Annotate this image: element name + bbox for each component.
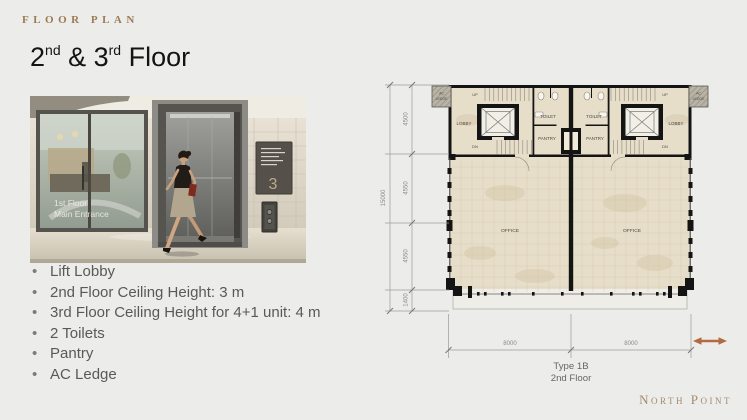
elevator: [152, 100, 248, 248]
label-up-right: UP: [662, 92, 668, 97]
label-lobby-left: LOBBY: [456, 121, 471, 126]
label-ac-left-2: LEDGE: [436, 97, 449, 101]
double-arrow-icon: [693, 337, 727, 345]
label-lobby-right: LOBBY: [668, 121, 683, 126]
feature-list: Lift Lobby 2nd Floor Ceiling Height: 3 m…: [28, 262, 368, 385]
floor-plan-drawing: 15000 4500 4550 4550 1400 8000 8000 LOBB…: [365, 28, 745, 388]
label-toilet-right: TOILET: [586, 114, 602, 119]
label-ac-right-1: AC: [696, 92, 701, 96]
photo-overlay-line1: 1st Floor: [54, 198, 87, 208]
label-up-left: UP: [472, 92, 478, 97]
dim-seg3: 4550: [404, 249, 410, 263]
photo-overlay-line2: Main Entrance: [54, 209, 109, 219]
title-seg2: & 3: [61, 42, 109, 72]
list-item: 2 Toilets: [28, 324, 368, 345]
dim-seg4: 1400: [404, 293, 410, 307]
dim-seg1: 4500: [404, 112, 410, 126]
dim-width-right: 8000: [624, 341, 638, 347]
eyebrow-heading: FLOOR PLAN: [22, 14, 139, 26]
page-title: 2nd & 3rd Floor: [30, 42, 190, 73]
service-duct: [561, 128, 581, 154]
lift-shaft-left: [477, 104, 519, 140]
title-seg3: Floor: [121, 42, 190, 72]
plan-caption: Type 1B 2nd Floor: [551, 361, 592, 384]
level-sign: 3: [256, 142, 292, 194]
footer: Developed by: Hongkong Land sinarmas lan…: [0, 392, 747, 420]
title-sup1: nd: [45, 42, 61, 58]
label-pantry-right: PANTRY: [586, 136, 604, 141]
list-item: 3rd Floor Ceiling Height for 4+1 unit: 4…: [28, 303, 368, 324]
lift-shaft-right: [621, 104, 663, 140]
level-sign-number: 3: [269, 176, 278, 193]
list-item: 2nd Floor Ceiling Height: 3 m: [28, 283, 368, 304]
dim-width-left: 8000: [503, 341, 517, 347]
north-point-brand: North Point: [639, 392, 732, 408]
plan-caption-line2: 2nd Floor: [551, 373, 592, 384]
slide: FLOOR PLAN 2nd & 3rd Floor: [0, 0, 747, 420]
label-office-left: OFFICE: [501, 228, 520, 234]
label-toilet-left: TOILET: [540, 114, 556, 119]
label-dn-right: DN: [662, 144, 668, 149]
label-office-right: OFFICE: [623, 228, 642, 234]
lift-lobby-photo: 1st Floor Main Entrance: [30, 96, 306, 263]
list-item: Pantry: [28, 344, 368, 365]
dim-total-height: 15000: [381, 189, 387, 206]
label-dn-left: DN: [472, 144, 478, 149]
dim-seg2: 4550: [404, 181, 410, 195]
title-sup2: rd: [109, 42, 121, 58]
label-ac-right-2: LEDGE: [693, 97, 706, 101]
list-item: Lift Lobby: [28, 262, 368, 283]
plan-caption-line1: Type 1B: [553, 361, 588, 372]
title-seg1: 2: [30, 42, 45, 72]
ac-ledge-band-bottom: [453, 288, 687, 309]
glass-entrance: 1st Floor Main Entrance: [36, 110, 148, 232]
list-item: AC Ledge: [28, 365, 368, 386]
label-ac-left-1: AC: [439, 92, 444, 96]
elevator-call-panel: [262, 202, 277, 232]
lift-lobby-photo-render: 1st Floor Main Entrance: [30, 96, 306, 263]
label-pantry-left: PANTRY: [538, 136, 556, 141]
